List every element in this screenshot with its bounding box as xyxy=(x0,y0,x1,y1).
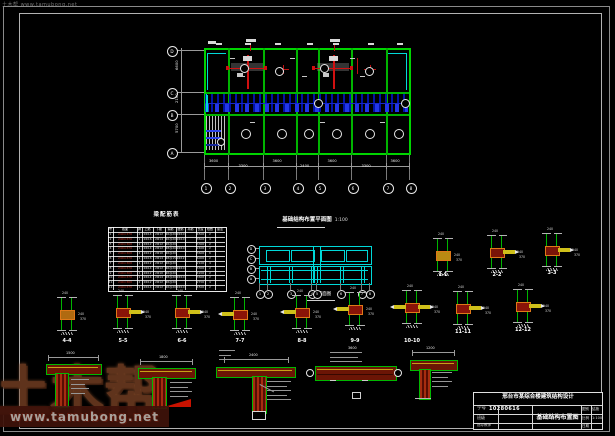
corridor-beam-line xyxy=(205,103,408,104)
table-cell: 2Φ12 xyxy=(142,252,153,255)
table-cell: 240×300 xyxy=(113,272,137,275)
label-blob xyxy=(208,41,216,44)
footing-leg xyxy=(55,373,69,408)
footing-leg xyxy=(152,377,167,409)
detail-hatch xyxy=(117,330,129,333)
table-cell: 2Φ10 xyxy=(176,233,185,236)
mini-label-scale: 比例 xyxy=(582,416,589,421)
vent-tick xyxy=(275,43,281,45)
footing-pad xyxy=(252,411,266,420)
beam-label-dash xyxy=(250,122,255,123)
detail-hatch xyxy=(234,332,246,335)
table-cell: Φ8@200 xyxy=(165,247,176,250)
beam-label-dash xyxy=(290,58,295,59)
table-cell: Φ6@200 xyxy=(165,286,176,289)
table-cell: 腰筋 xyxy=(176,228,185,231)
table-cell: Φ6@200 xyxy=(165,272,176,275)
detail-dim: 240 xyxy=(313,311,319,314)
mini-value-scale: 1:100 xyxy=(592,416,602,420)
dim-tick xyxy=(288,357,289,363)
table-cell: Φ6@200 xyxy=(165,262,176,265)
axis-bubble-left: A xyxy=(247,275,256,284)
annotation-text xyxy=(71,388,89,389)
detail-tick xyxy=(414,323,422,324)
dim-line-left xyxy=(181,48,182,153)
table-cell: 2Φ12 xyxy=(142,262,153,265)
axis-bubble-left: B xyxy=(247,265,256,274)
detail-label: 7-7 xyxy=(225,339,255,344)
label-blob xyxy=(246,39,256,42)
table-cell: 2Φ10 xyxy=(176,247,185,250)
detail-label: 3-3 xyxy=(537,271,567,276)
dim-text-bottom: 2400 xyxy=(300,165,309,169)
table-cell: 240×300 xyxy=(113,243,137,246)
table-cell: 4 xyxy=(205,281,215,284)
detail-hatch xyxy=(349,327,361,330)
arrowhead xyxy=(218,312,222,316)
table-cell: 240×370 xyxy=(113,238,137,241)
axis-bubble-bottom: 5 xyxy=(313,290,322,299)
arrowhead xyxy=(333,307,337,311)
detail-tick xyxy=(453,324,462,325)
detail-stub xyxy=(418,305,430,309)
dim-text: 1800 xyxy=(159,356,168,359)
table-cell: 3300 xyxy=(196,243,205,246)
footing-pad xyxy=(352,392,361,399)
detail-stub xyxy=(558,248,570,252)
cad-canvas: DCBA660021005700360033003600240036003300… xyxy=(0,0,615,436)
footing-rect xyxy=(346,250,368,262)
annotation-text xyxy=(170,396,188,397)
column-mark xyxy=(357,58,358,74)
detail-dim: 370 xyxy=(434,311,440,314)
axis-bubble-left: D xyxy=(247,245,256,254)
detail-tick xyxy=(542,266,551,267)
detail-tick xyxy=(57,297,66,298)
annotation-text xyxy=(432,386,448,387)
detail-tick xyxy=(292,328,301,329)
detail-dim: 240 xyxy=(202,311,208,314)
footing-shadow-line xyxy=(317,374,393,375)
detail-dim: 240 xyxy=(297,290,303,293)
table-cell: 6000 xyxy=(196,257,205,260)
dim-text-bottom: 3300 xyxy=(362,165,371,169)
dim-text: 1500 xyxy=(66,352,75,355)
detail-dim: 240 xyxy=(350,287,356,290)
annotation-text xyxy=(267,399,291,400)
detail-dim: 370 xyxy=(145,316,151,319)
detail-tick xyxy=(499,235,507,236)
table-cell: 2Φ12 xyxy=(153,262,165,265)
table-cell: Φ6@200 xyxy=(165,233,176,236)
student-no-label: 学号 xyxy=(477,407,486,412)
table-cell: 2Φ16 xyxy=(142,238,153,241)
detail-tick xyxy=(57,330,66,331)
detail-dim: 240 xyxy=(518,284,524,287)
beam-line-h xyxy=(204,153,410,155)
room-outline xyxy=(388,53,407,54)
detail-tick xyxy=(513,322,522,323)
footing-rect xyxy=(291,250,315,262)
dim-leader xyxy=(316,283,317,290)
detail-dim: 370 xyxy=(80,318,86,321)
table-cell: 2Φ14 xyxy=(142,276,153,279)
table-cell: Φ8@150 xyxy=(165,257,176,260)
arrowhead xyxy=(280,310,284,314)
dim-leader xyxy=(267,283,268,290)
table-cell: 3600 xyxy=(196,276,205,279)
detail-dim: 240 xyxy=(543,305,549,308)
detail-tick xyxy=(357,325,365,326)
detail-tick xyxy=(487,268,496,269)
axis-bubble-bottom: 3 xyxy=(287,290,296,299)
column-tick xyxy=(350,66,353,70)
detail-tick xyxy=(292,295,301,296)
section-bubble xyxy=(320,64,329,73)
detail-tick xyxy=(113,295,122,296)
section-bubble xyxy=(365,67,374,76)
table-cell: 2 xyxy=(205,243,215,246)
table-cell: 4500 xyxy=(196,286,205,289)
watermark-url-banner: www.tamubong.net xyxy=(0,406,169,427)
detail-dim: 240 xyxy=(483,307,489,310)
table-cell: Φ6@200 xyxy=(165,243,176,246)
vent-tick xyxy=(216,43,222,45)
footing-line xyxy=(320,246,321,283)
footing-line xyxy=(261,270,368,271)
annotation-text xyxy=(330,361,362,362)
detail-stub xyxy=(394,305,406,309)
title-block: 邢台市某综合楼建筑结构设计 学号 10280616 班级 指导教师 基础结构布置… xyxy=(473,392,603,430)
section-bubble xyxy=(240,64,249,73)
detail-hatch xyxy=(61,332,73,335)
detail-label: 8-8 xyxy=(287,339,317,344)
detail-label: 2-2 xyxy=(482,273,512,278)
table-cell: 2 xyxy=(205,247,215,250)
column-tick xyxy=(226,66,229,70)
detail-tick xyxy=(113,328,122,329)
detail-tick xyxy=(499,268,507,269)
detail-tick xyxy=(362,380,368,381)
annotation-text xyxy=(71,393,85,394)
dim-tick xyxy=(204,163,205,169)
table-cell: 长度 xyxy=(196,228,205,231)
detail-tick xyxy=(433,238,442,239)
title-block-divider xyxy=(498,405,499,429)
table-cell: 4 xyxy=(205,238,215,241)
detail-tick xyxy=(304,328,312,329)
cad-drawing-sheet: 土木帮 www.tamubong.net 土木帮 www.tamubong.ne… xyxy=(0,0,615,436)
table-cell: 2Φ14 xyxy=(142,267,153,270)
axis-bubble-left: C xyxy=(247,255,256,264)
table-cell: 根数 xyxy=(205,228,215,231)
table-cell: 240×370 xyxy=(113,233,137,236)
project-title: 邢台市某综合楼建筑结构设计 xyxy=(474,395,602,401)
axis-bubble-bottom: 6 xyxy=(348,183,359,194)
table-cell: 2Φ12 xyxy=(153,233,165,236)
corridor-slab-hatch-bright xyxy=(205,104,408,112)
detail-beam-section xyxy=(348,305,363,315)
dim-text-bottom: 3600 xyxy=(209,160,218,164)
detail-tick xyxy=(357,292,365,293)
detail-dim: 240 xyxy=(547,228,553,231)
table-cell: Φ6@200 xyxy=(165,238,176,241)
footing-rebar xyxy=(412,363,454,364)
dim-tick xyxy=(48,355,49,361)
detail-stub xyxy=(529,304,541,308)
table-cell: 2Φ10 xyxy=(176,267,185,270)
dim-tick xyxy=(192,359,193,365)
title-block-divider xyxy=(474,405,602,406)
detail-label: 10-10 xyxy=(397,339,427,344)
dim-tick xyxy=(412,350,413,356)
axis-bubble-bottom: 2 xyxy=(225,183,236,194)
annotation-text xyxy=(432,372,452,373)
detail-dim: 370 xyxy=(368,313,374,316)
label-blob xyxy=(323,73,329,77)
axis-bubble-bottom: 1 xyxy=(201,183,212,194)
detail-dim: 240 xyxy=(492,230,498,233)
column-tick xyxy=(312,66,315,70)
detail-dim: 240 xyxy=(143,311,149,314)
stair-arrow xyxy=(206,130,221,132)
dim-leader xyxy=(311,283,312,290)
detail-dim: 240 xyxy=(458,286,464,289)
detail-dim: 370 xyxy=(574,254,580,257)
table-cell: 2 xyxy=(205,286,215,289)
annotation-text xyxy=(432,381,452,382)
axis-bubble-bottom: 8 xyxy=(366,290,375,299)
table-cell: 6 xyxy=(205,252,215,255)
section-bubble xyxy=(332,129,342,139)
dim-tick xyxy=(318,163,319,169)
detail-tick xyxy=(69,297,77,298)
dim-bubble xyxy=(394,369,402,377)
detail-tick xyxy=(415,398,431,399)
detail-dim: 240 xyxy=(251,313,257,316)
detail-tick xyxy=(242,297,250,298)
dim-line xyxy=(48,357,98,358)
detail-dim: 370 xyxy=(456,259,462,262)
label-blob xyxy=(243,56,252,61)
detail-tick xyxy=(230,297,239,298)
table-cell: 下筋 xyxy=(153,228,165,231)
axis-bubble-bottom: 4 xyxy=(293,183,304,194)
detail-tick xyxy=(513,289,522,290)
detail-tick xyxy=(125,295,133,296)
table-cell: 2700 xyxy=(196,281,205,284)
vent-tick xyxy=(368,43,374,45)
table-cell: 240×300 xyxy=(113,262,137,265)
footing-leg xyxy=(252,376,267,414)
detail-beam-section xyxy=(436,251,451,261)
room-outline xyxy=(207,53,208,90)
table-cell: 2Φ12 xyxy=(153,243,165,246)
table-cell: 4500 xyxy=(196,233,205,236)
detail-tick xyxy=(453,291,462,292)
table-cell: 240×370 xyxy=(113,276,137,279)
footing-rect xyxy=(266,250,290,262)
detail-dim: 370 xyxy=(519,256,525,259)
table-cell: 2Φ12 xyxy=(153,286,165,289)
table-cell: 2Φ12 xyxy=(176,257,185,260)
detail-tick xyxy=(542,233,551,234)
detail-stub xyxy=(284,310,296,314)
detail-dim: 240 xyxy=(572,249,578,252)
table-cell: 2 xyxy=(205,267,215,270)
dim-text-bottom: 3600 xyxy=(273,160,282,164)
section-bubble xyxy=(277,129,287,139)
section-bubble xyxy=(401,99,410,108)
beam-line-h xyxy=(204,48,410,50)
detail-dim: 240 xyxy=(78,313,84,316)
dim-tick xyxy=(263,163,264,169)
corridor-wall-line xyxy=(207,95,208,112)
dim-leader xyxy=(290,283,291,290)
detail-tick xyxy=(554,233,562,234)
detail-stub xyxy=(222,312,234,316)
detail-stub xyxy=(188,310,200,314)
detail-tick xyxy=(525,289,533,290)
beam-label-dash xyxy=(320,122,325,123)
detail-beam-section xyxy=(295,308,310,318)
table-cell: 2Φ10 xyxy=(153,252,165,255)
beam-label-dash xyxy=(380,122,385,123)
detail-dim: 370 xyxy=(315,316,321,319)
dim-leader xyxy=(340,283,341,290)
table-cell: 2Φ14 xyxy=(153,257,165,260)
student-no-value: 10280616 xyxy=(489,407,520,412)
footing-rebar xyxy=(317,369,393,370)
beam-label-dash xyxy=(240,76,245,77)
detail-tick xyxy=(304,295,312,296)
mini-value-type: 结施 xyxy=(592,407,599,412)
detail-tick xyxy=(554,266,562,267)
section-bubble xyxy=(275,67,284,76)
table-cell: 2Φ14 xyxy=(142,286,153,289)
detail-dim: 370 xyxy=(485,312,491,315)
arrowhead xyxy=(390,305,394,309)
detail-tick xyxy=(125,328,133,329)
detail-tick xyxy=(465,291,473,292)
table-cell: 4200 xyxy=(196,272,205,275)
beam-label-dash xyxy=(302,76,307,77)
table-cell: 2Φ12 xyxy=(142,281,153,284)
detail-tick xyxy=(242,330,250,331)
table-cell: 2400 xyxy=(196,247,205,250)
mini-label-type: 图别 xyxy=(582,407,589,412)
table-cell: 240×300 xyxy=(113,252,137,255)
dim-tick xyxy=(351,163,352,169)
table-cell: 2Φ12 xyxy=(142,272,153,275)
annotation-text xyxy=(267,386,287,387)
dim-text-left: 2100 xyxy=(175,93,179,103)
detail-dim: 240 xyxy=(177,290,183,293)
table-cell: 备注 xyxy=(215,228,225,231)
dim-leader xyxy=(369,283,370,290)
table-cell: 3600 xyxy=(196,252,205,255)
detail-tick xyxy=(345,292,354,293)
axis-bubble-bottom: 7 xyxy=(383,183,394,194)
dim-tick xyxy=(228,163,229,169)
detail-label: 5-5 xyxy=(108,339,138,344)
table-cell: 2 xyxy=(205,276,215,279)
dim-text-left: 5700 xyxy=(175,123,179,133)
advisor-label: 指导教师 xyxy=(477,424,491,428)
detail-tick xyxy=(345,325,354,326)
axis-bubble-bottom: 3 xyxy=(260,183,271,194)
axis-bubble-left: D xyxy=(167,46,178,57)
dim-line xyxy=(224,359,288,360)
table-cell: 2 xyxy=(205,272,215,275)
table-cell: 2 xyxy=(205,257,215,260)
dim-text-left: 6600 xyxy=(175,60,179,70)
annotation-text xyxy=(71,384,85,385)
footing-rect xyxy=(321,250,345,262)
detail-dim: 240 xyxy=(366,308,372,311)
table-cell: 240×370 xyxy=(113,247,137,250)
table-cell: 吊筋 xyxy=(185,228,196,231)
detail-label: 4-4 xyxy=(52,339,82,344)
dim-text: 1200 xyxy=(426,347,435,350)
detail-tick xyxy=(172,295,181,296)
axis-bubble-bottom: 8 xyxy=(406,183,417,194)
room-outline xyxy=(207,53,226,54)
annotation-text xyxy=(432,377,448,378)
table-cell: 2Φ14 xyxy=(153,276,165,279)
axis-bubble-bottom: 2 xyxy=(264,290,273,299)
detail-tick xyxy=(402,323,411,324)
detail-tick xyxy=(330,380,336,381)
footing-rebar xyxy=(218,370,292,371)
footing-rebar xyxy=(48,367,98,368)
table-cell: 2Φ12 xyxy=(142,243,153,246)
annotation-text xyxy=(267,381,291,382)
vent-tick xyxy=(333,43,339,45)
beam-label-dash xyxy=(350,58,355,59)
dim-line xyxy=(140,361,192,362)
stair-bubble xyxy=(217,138,225,146)
dim-line xyxy=(412,352,454,353)
table-cell: 240×300 xyxy=(113,281,137,284)
dim-text-bottom: 3600 xyxy=(328,160,337,164)
table-cell: 2Φ12 xyxy=(153,267,165,270)
annotation-text xyxy=(170,391,192,392)
detail-stub xyxy=(503,250,515,254)
axis-bubble-bottom: 5 xyxy=(315,183,326,194)
table-cell: 2Φ10 xyxy=(153,272,165,275)
annotation-text xyxy=(71,379,89,380)
table-cell: 240×370 xyxy=(113,257,137,260)
detail-tick xyxy=(487,235,496,236)
table-cell: Φ6@200 xyxy=(165,252,176,255)
section-bubble xyxy=(365,129,375,139)
table-cell: 2 xyxy=(205,233,215,236)
detail-label: 11-11 xyxy=(448,330,478,335)
dim-tick xyxy=(224,357,225,363)
mini-label-date: 日期 xyxy=(582,424,589,429)
table-cell: 2Φ10 xyxy=(176,276,185,279)
dim-leader xyxy=(259,283,260,290)
vent-tick xyxy=(307,43,313,45)
detail-dim: 240 xyxy=(454,254,460,257)
detail-tick xyxy=(414,290,422,291)
room-outline xyxy=(406,53,407,90)
dim-tick xyxy=(140,359,141,365)
table-cell: 2Φ16 xyxy=(142,257,153,260)
detail-hatch xyxy=(296,330,308,333)
detail-stub xyxy=(337,307,349,311)
